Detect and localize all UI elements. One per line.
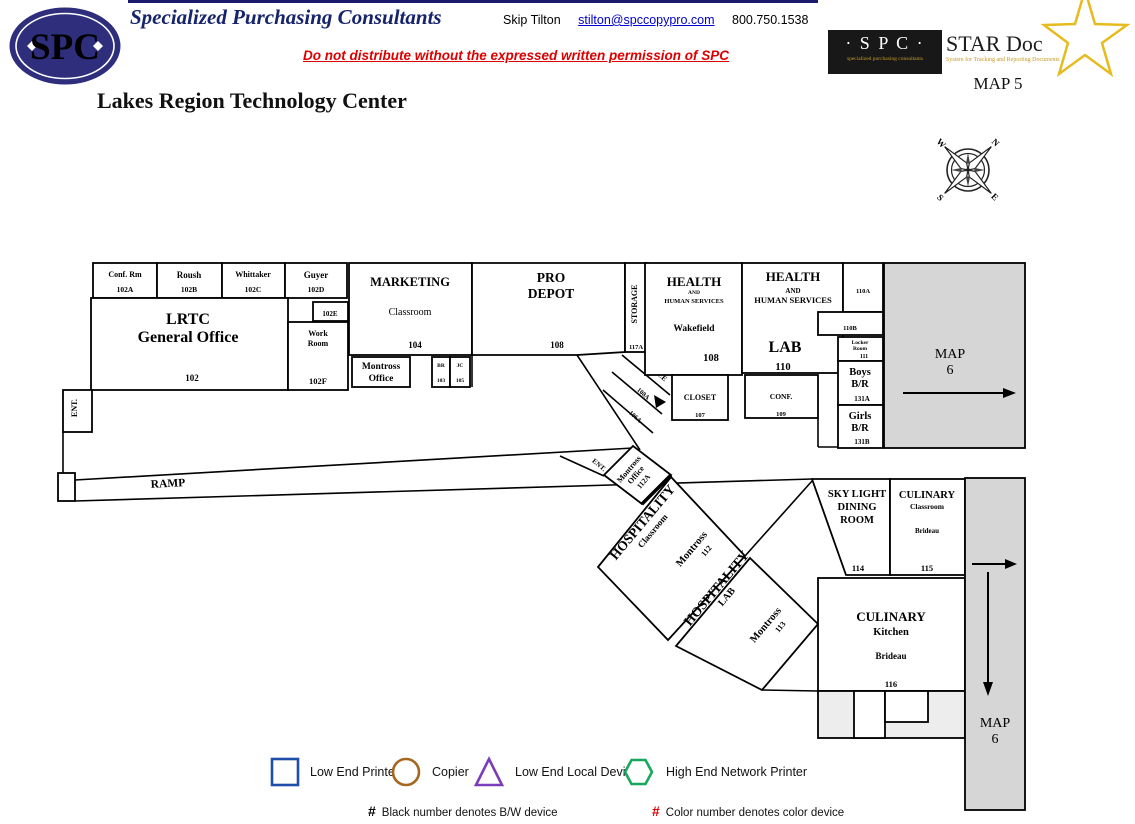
room-label: HUMAN SERVICES bbox=[754, 295, 832, 305]
room-label: Wakefield bbox=[673, 324, 715, 334]
map6-label: 6 bbox=[992, 732, 999, 747]
room-label: CULINARY bbox=[856, 609, 926, 624]
room-label: Whittaker bbox=[235, 270, 271, 279]
legend-label: High End Network Printer bbox=[666, 765, 807, 779]
room-number: 110 bbox=[775, 362, 790, 373]
room-number: 102 bbox=[185, 373, 199, 383]
hash-black-icon: # bbox=[368, 803, 376, 819]
room-label: Roush bbox=[177, 270, 202, 280]
room-label: Office bbox=[369, 374, 394, 384]
service-room-2 bbox=[885, 691, 928, 722]
room-label: Room bbox=[853, 346, 867, 352]
room-number: 109 bbox=[776, 411, 787, 418]
room-label: B/R bbox=[851, 379, 869, 390]
stardoc-title-box: STAR Doc System for Tracking and Reporti… bbox=[946, 32, 1106, 65]
room-number: 107 bbox=[695, 412, 706, 419]
square-icon bbox=[270, 756, 300, 788]
stardoc-tagline-left: specialized purchasing consultants bbox=[828, 56, 942, 62]
entrance-label: ENT. bbox=[70, 399, 79, 417]
room-number: 110B bbox=[843, 325, 857, 332]
stardoc-spc-box: · S P C · specialized purchasing consult… bbox=[828, 30, 942, 74]
compass-rose-icon: N E S W bbox=[907, 109, 1028, 230]
service-room-1 bbox=[854, 691, 885, 738]
room-label: Conf. Rm bbox=[108, 270, 142, 279]
room-number: 131A bbox=[854, 395, 870, 403]
stardoc-tagline-right: System for Tracking and Reporting Docume… bbox=[946, 56, 1106, 65]
room-label: PRO bbox=[537, 270, 566, 285]
room-label: LRTC bbox=[166, 311, 210, 328]
room-label: DINING bbox=[837, 502, 876, 513]
room-label: ROOM bbox=[840, 515, 874, 526]
legend-item-high-end-network-printer: High End Network Printer bbox=[622, 756, 807, 788]
room-label: Guyer bbox=[304, 270, 329, 280]
room-number: 102B bbox=[181, 285, 197, 294]
room-label: STORAGE bbox=[630, 285, 639, 324]
room-label: Classroom bbox=[910, 502, 945, 511]
legend-item-low-end-printer: Low End Printer bbox=[270, 756, 399, 788]
map6-label: 6 bbox=[947, 363, 954, 378]
legend-item-copier: Copier bbox=[390, 756, 469, 788]
ramp-label: RAMP bbox=[150, 477, 185, 491]
room-label: HUMAN SERVICES bbox=[664, 298, 724, 305]
room-number: 102F bbox=[309, 376, 327, 386]
circle-icon bbox=[390, 756, 422, 788]
room-number: 102E bbox=[322, 310, 338, 318]
map6-link-bottom[interactable]: MAP 6 bbox=[965, 478, 1025, 810]
map6-link-right[interactable]: MAP 6 bbox=[884, 263, 1025, 448]
room-label: Brideau bbox=[875, 651, 906, 661]
room-label: DEPOT bbox=[528, 286, 575, 301]
legend-note-bw: #Black number denotes B/W device bbox=[368, 803, 558, 819]
legend-label: Copier bbox=[432, 765, 469, 779]
room-label: Girls bbox=[849, 411, 872, 422]
room-number: 102A bbox=[117, 285, 134, 294]
room-label: CONF. bbox=[770, 392, 793, 401]
room-label: HEALTH bbox=[766, 269, 820, 284]
room-number: 115 bbox=[921, 563, 933, 573]
room-label: General Office bbox=[138, 329, 239, 346]
room-number: 108 bbox=[550, 340, 564, 350]
room-label: HEALTH bbox=[667, 274, 721, 289]
note-text: Color number denotes color device bbox=[666, 807, 844, 819]
room-label: CULINARY bbox=[899, 490, 956, 501]
room-number: 102C bbox=[245, 285, 262, 294]
room-number: 104 bbox=[408, 340, 422, 350]
room-number: 110A bbox=[856, 288, 870, 295]
room-label: Boys bbox=[849, 367, 871, 378]
floor-plan: N E S W Conf. Rm 102A Roush 102B Whittak… bbox=[0, 0, 1135, 824]
room-label: Brideau bbox=[915, 527, 939, 535]
room-label: Montross bbox=[362, 362, 401, 372]
map6-label: MAP bbox=[935, 347, 966, 362]
stardoc-spc-text: · S P C · bbox=[828, 30, 942, 56]
room-label: AND bbox=[688, 290, 700, 296]
room-label: BR bbox=[437, 363, 446, 369]
legend-label: Low End Printer bbox=[310, 765, 399, 779]
room-label: CLOSET bbox=[684, 393, 717, 402]
entry-arrow-icon bbox=[654, 395, 666, 408]
room-label: Work bbox=[308, 329, 328, 338]
ramp-landing bbox=[58, 473, 75, 501]
room-label: MARKETING bbox=[370, 275, 450, 289]
legend-item-low-end-local-device: Low End Local Device bbox=[473, 756, 639, 788]
room-number: 111 bbox=[860, 354, 868, 360]
room-label: JC bbox=[457, 363, 464, 369]
compass-south: S bbox=[935, 192, 946, 203]
legend-note-color: #Color number denotes color device bbox=[652, 803, 844, 819]
room-number: 108 bbox=[703, 353, 719, 364]
room-number: 116 bbox=[885, 679, 897, 689]
note-text: Black number denotes B/W device bbox=[382, 807, 558, 819]
room-label: AND bbox=[785, 287, 800, 295]
room-number: 105 bbox=[456, 378, 465, 384]
room-number: 131B bbox=[854, 438, 870, 446]
page: SPC Specialized Purchasing Consultants S… bbox=[0, 0, 1135, 824]
room-label: Classroom bbox=[389, 307, 432, 318]
stardoc-title: STAR Doc bbox=[946, 32, 1106, 56]
hexagon-icon bbox=[622, 756, 656, 788]
room-number: 117A bbox=[629, 344, 643, 351]
legend-label: Low End Local Device bbox=[515, 765, 639, 779]
room-label: LAB bbox=[769, 339, 802, 356]
room-label: SKY LIGHT bbox=[828, 489, 886, 500]
room-label: Kitchen bbox=[873, 627, 909, 638]
hash-red-icon: # bbox=[652, 803, 660, 819]
room-label: Room bbox=[308, 339, 329, 348]
map6-label: MAP bbox=[980, 716, 1011, 731]
room-number: 114 bbox=[852, 563, 865, 573]
triangle-icon bbox=[473, 756, 505, 788]
room-label: B/R bbox=[851, 423, 869, 434]
room-number: 102D bbox=[308, 285, 325, 294]
room-number: 103 bbox=[437, 378, 446, 384]
